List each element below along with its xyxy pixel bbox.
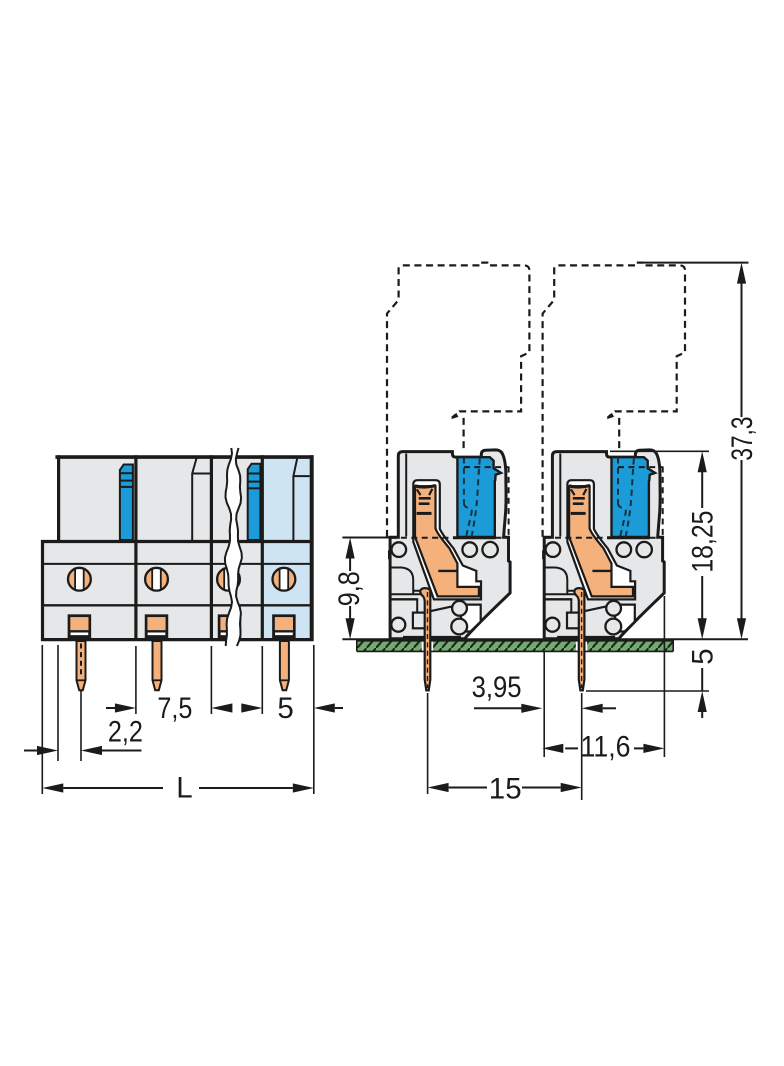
svg-text:9,8: 9,8	[333, 571, 366, 606]
svg-text:3,95: 3,95	[472, 671, 522, 704]
svg-text:5: 5	[277, 692, 293, 725]
svg-text:37,3: 37,3	[726, 417, 759, 461]
svg-text:2,2: 2,2	[108, 716, 143, 749]
svg-text:7,5: 7,5	[157, 692, 192, 725]
svg-text:18,25: 18,25	[687, 511, 720, 573]
svg-text:5: 5	[687, 648, 720, 664]
svg-text:L: L	[176, 772, 192, 805]
svg-text:11,6: 11,6	[581, 731, 631, 764]
svg-text:15: 15	[489, 772, 522, 805]
